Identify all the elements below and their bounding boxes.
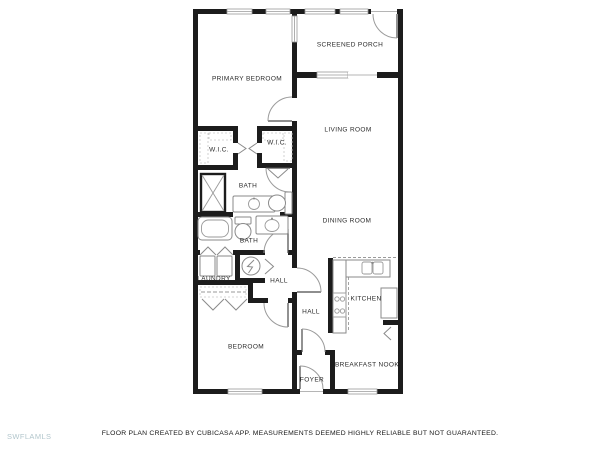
room-label-wic-left: W.I.C. <box>209 147 229 154</box>
foyer-hall-door <box>302 329 325 352</box>
room-label-bath-upper: BATH <box>239 183 257 190</box>
refrigerator <box>381 288 397 318</box>
room-label-wic-right: W.I.C. <box>267 140 287 147</box>
bathtub <box>198 217 232 240</box>
toilet-lower <box>235 217 251 240</box>
kitchen-counter-left <box>333 260 346 333</box>
washer <box>200 256 215 276</box>
wic-left-door <box>238 143 246 154</box>
room-label-living-room: LIVING ROOM <box>324 127 371 134</box>
room-label-primary-bedroom: PRIMARY BEDROOM <box>212 76 282 83</box>
room-label-breakfast-nook: BREAKFAST NOOK <box>335 362 399 369</box>
water-heater-closet-door <box>265 259 274 274</box>
laundry-fixtures <box>200 256 260 276</box>
hall-door <box>297 268 321 292</box>
room-label-kitchen: KITCHEN <box>351 296 382 303</box>
primary-bedroom-door <box>268 97 292 121</box>
room-label-foyer: FOYER <box>300 377 324 384</box>
shower <box>201 174 225 212</box>
room-label-screened-porch: SCREENED PORCH <box>317 42 383 49</box>
footer-disclaimer: FLOOR PLAN CREATED BY CUBICASA APP. MEAS… <box>0 430 600 437</box>
bath-upper-door <box>266 168 290 192</box>
room-label-bedroom: BEDROOM <box>228 344 264 351</box>
room-label-laundry: LAUNDRY <box>197 276 230 283</box>
vanity-sink-lower <box>256 216 288 234</box>
bedroom-door <box>264 303 288 327</box>
wic-right-door <box>249 143 257 154</box>
dryer <box>217 256 232 276</box>
room-label-bath-lower: BATH <box>240 238 258 245</box>
floor-plan-page: PRIMARY BEDROOM SCREENED PORCH LIVING RO… <box>0 0 600 450</box>
laundry-bifold-right <box>217 247 233 255</box>
linen-closet-door <box>268 169 288 178</box>
mls-watermark: SWFLAMLS <box>7 432 51 441</box>
bedroom-closet-bifold-right <box>225 299 247 310</box>
bedroom-closet-bifold-left <box>202 299 224 310</box>
room-label-dining-room: DINING ROOM <box>323 218 372 225</box>
room-label-hall-lower: HALL <box>302 309 320 316</box>
porch-door <box>373 14 397 38</box>
water-heater <box>242 257 260 275</box>
laundry-bifold-left <box>200 247 216 255</box>
room-label-hall-upper: HALL <box>270 278 288 285</box>
pantry-door <box>384 327 391 340</box>
